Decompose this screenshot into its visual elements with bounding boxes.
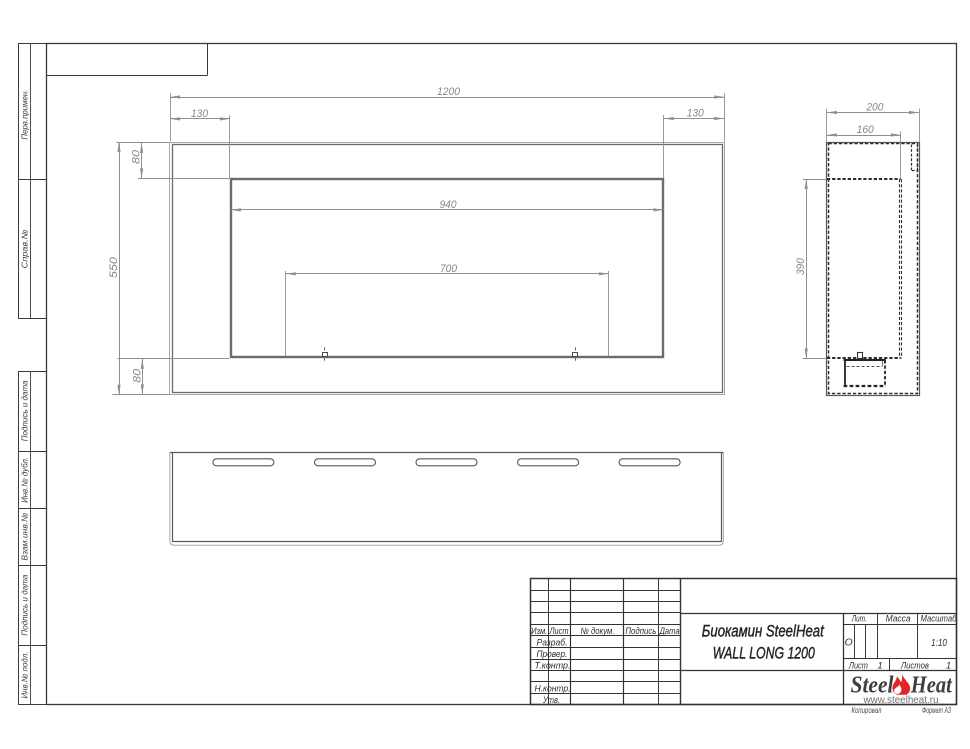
svg-text:Т.контр.: Т.контр.	[535, 661, 571, 671]
svg-text:WALL LONG 1200: WALL LONG 1200	[713, 645, 815, 663]
svg-text:80: 80	[131, 149, 143, 164]
svg-text:130: 130	[191, 108, 209, 120]
svg-text:Лист: Лист	[848, 661, 868, 671]
svg-text:Дата: Дата	[659, 626, 680, 636]
svg-text:550: 550	[108, 256, 120, 278]
svg-text:Перв.примен.: Перв.примен.	[20, 90, 30, 140]
svg-text:80: 80	[131, 368, 143, 383]
svg-text:Лит.: Лит.	[851, 614, 867, 624]
svg-text:1: 1	[946, 661, 951, 671]
svg-text:Подпись: Подпись	[625, 626, 656, 636]
svg-text:Копировал: Копировал	[851, 705, 881, 715]
svg-text:1200: 1200	[437, 86, 461, 98]
svg-text:Разраб.: Разраб.	[537, 637, 568, 647]
svg-text:Формат А3: Формат А3	[922, 705, 951, 715]
svg-text:Листов: Листов	[900, 661, 929, 671]
svg-text:Инв.№ дубл.: Инв.№ дубл.	[20, 457, 30, 503]
svg-text:130: 130	[687, 108, 705, 120]
svg-text:Лист: Лист	[549, 626, 569, 636]
svg-text:Взам.инв.№: Взам.инв.№	[20, 513, 30, 561]
svg-text:390: 390	[795, 257, 807, 275]
svg-text:Н.контр.: Н.контр.	[535, 683, 571, 693]
svg-text:Масштаб: Масштаб	[921, 614, 958, 624]
svg-text:1: 1	[877, 661, 882, 671]
svg-text:Биокамин SteelHeat: Биокамин SteelHeat	[702, 623, 825, 641]
svg-text:Подпись и дата: Подпись и дата	[20, 380, 30, 441]
svg-text:940: 940	[440, 199, 458, 211]
svg-text:700: 700	[440, 263, 458, 275]
svg-text:Подпись и дата: Подпись и дата	[20, 575, 30, 636]
svg-text:Справ.№: Справ.№	[20, 229, 30, 268]
svg-text:200: 200	[865, 102, 884, 114]
svg-text:Изм.: Изм.	[531, 626, 547, 636]
svg-text:1:10: 1:10	[931, 637, 947, 649]
svg-text:№ докум.: № докум.	[581, 626, 615, 636]
svg-text:Провер.: Провер.	[537, 649, 568, 659]
svg-text:О: О	[845, 638, 853, 649]
svg-text:Утв.: Утв.	[542, 695, 560, 705]
svg-text:Инв.№ подл.: Инв.№ подл.	[20, 652, 30, 699]
svg-text:Масса: Масса	[886, 614, 911, 624]
svg-text:160: 160	[857, 124, 875, 136]
